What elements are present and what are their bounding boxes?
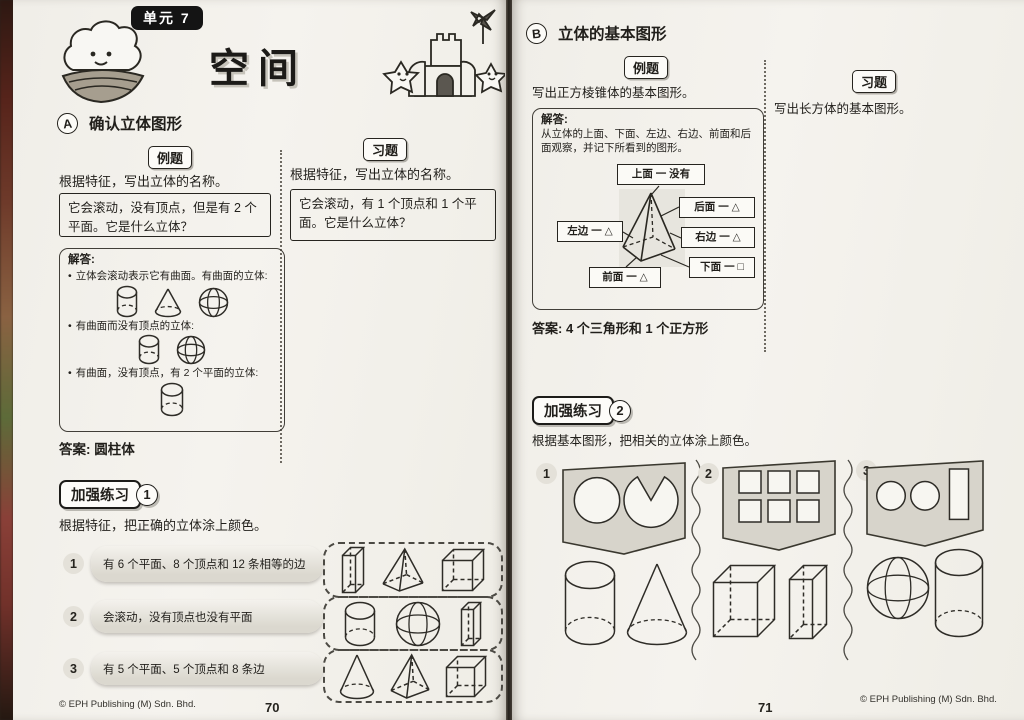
sphere-shape [395,601,441,647]
scanned-spread: 单元 7 空间 [0,0,1024,720]
practice2-badge: 加强练习 2 [532,396,631,425]
column-number: 2 [698,463,719,484]
practice2-number: 2 [609,400,631,422]
page-71: B 立体的基本图形 例题 写出正方棱锥体的基本图形。 解答: 从立体的上面、下面… [512,0,1024,720]
section-a-letter: A [56,111,79,134]
column-number: 1 [536,463,557,484]
scan-edge-background [0,0,13,720]
cylinder-shape [160,382,184,417]
solution-label: 解答: [541,113,755,128]
solution-bullet: •立体会滚动表示它有曲面。有曲面的立体: [68,270,276,284]
row-number: 1 [63,553,84,574]
row-label: 会滚动，没有顶点也没有平面 [91,600,323,633]
solution-bullet: •有曲面，没有顶点，有 2 个平面的立体: [68,367,276,381]
basic-shapes-panel [866,458,984,553]
example-badge: 例题 [148,146,192,169]
page-number-70: 70 [265,700,279,715]
example-instruction: 写出正方棱锥体的基本图形。 [532,84,760,102]
exercise-instruction: 写出长方体的基本图形。 [774,100,1014,118]
cylinder-shape [116,285,138,318]
sphere-shape [198,287,229,318]
cylinder-shape [138,334,160,365]
solution-bullet: •有曲面而没有顶点的立体: [68,320,276,334]
pyramid-views-diagram: 上面 一 没有 后面 一 △ 左边 一 △ 右边 一 △ 下面 一 □ 前面 一… [533,161,765,307]
basic-shapes-panel [722,458,836,557]
row-shapes-box [323,542,503,598]
row-label: 有 5 个平面、5 个顶点和 8 条边 [91,652,323,685]
cylinder-solid [934,548,984,638]
solution-text: 从立体的上面、下面、左边、右边、前面和后面观察，并记下所看到的图形。 [541,128,755,155]
sphere-solid [866,556,930,620]
practice1-badge: 加强练习 1 [59,480,158,509]
chapter-title: 空间 [209,36,307,94]
view-label-back: 后面 一 △ [679,197,755,218]
practice1-instruction: 根据特征，把正确的立体涂上颜色。 [59,517,359,536]
solution-shapes-row [68,334,276,365]
row-number: 2 [63,606,84,627]
cone-shape [154,287,182,318]
example-question-box: 它会滚动，没有顶点，但是有 2 个平面。它是什么立体？ [59,193,271,237]
clam-mascot-illustration [51,18,153,113]
cone-shape [339,653,375,700]
sandcastle-illustration [379,6,505,109]
example-instruction: 根据特征，写出立体的名称。 [59,173,275,192]
example-solution-box: 解答: 从立体的上面、下面、左边、右边、前面和后面观察，并记下所看到的图形。 [532,108,764,310]
wavy-divider [690,458,704,668]
basic-shapes-panel [562,460,686,561]
practice2-instruction: 根据基本图形，把相关的立体涂上颜色。 [532,432,832,450]
cylinder-shape [344,601,376,647]
example-solution-box: 解答: •立体会滚动表示它有曲面。有曲面的立体: •有曲面而没有顶点的立体: •… [59,248,285,432]
pyramid-shape [381,547,425,593]
exercise-badge: 习题 [852,70,896,93]
sphere-shape [176,335,206,365]
section-b-title: 立体的基本图形 [554,20,679,46]
view-label-top: 上面 一 没有 [617,164,705,185]
section-a-title: 确认立体图形 [85,110,194,136]
view-label-bottom: 下面 一 □ [689,257,755,278]
page-number-71: 71 [758,700,772,715]
cube-solid [712,564,776,638]
copyright-right: © EPH Publishing (M) Sdn. Bhd. [860,694,997,705]
section-b-letter: B [525,21,548,44]
row-number: 3 [63,658,84,679]
cube-shape [441,548,485,592]
cube-shape [445,655,487,698]
cuboid-shape [341,546,365,594]
cone-solid [626,562,688,646]
cylinder-solid [564,560,616,646]
view-label-right: 右边 一 △ [681,227,755,248]
view-label-front: 前面 一 △ [589,267,661,288]
wavy-divider [842,458,856,668]
page-70: 单元 7 空间 [13,0,506,720]
exercise-question-box: 它会滚动，有 1 个顶点和 1 个平面。它是什么立体？ [290,189,496,241]
exercise-instruction: 根据特征，写出立体的名称。 [290,166,500,185]
example-answer: 答案: 4 个三角形和 1 个正方形 [532,318,708,337]
pyramid-shape [389,653,431,700]
example-answer: 答案: 圆柱体 [59,438,135,458]
cuboid-solid [788,564,828,640]
solution-shapes-row [68,382,276,417]
row-shapes-box [323,596,503,651]
practice1-number: 1 [136,484,158,506]
view-label-left: 左边 一 △ [557,221,623,242]
cuboid-shape [460,601,482,647]
section-b-heading: B 立体的基本图形 [526,20,679,46]
solution-label: 解答: [68,253,276,268]
copyright-left: © EPH Publishing (M) Sdn. Bhd. [59,699,196,710]
section-a-heading: A 确认立体图形 [57,110,194,136]
example-badge: 例题 [624,56,668,79]
solution-shapes-row [68,285,276,318]
exercise-badge: 习题 [363,138,407,161]
row-shapes-box [323,649,503,703]
row-label: 有 6 个平面、8 个顶点和 12 条相等的边 [91,546,323,582]
